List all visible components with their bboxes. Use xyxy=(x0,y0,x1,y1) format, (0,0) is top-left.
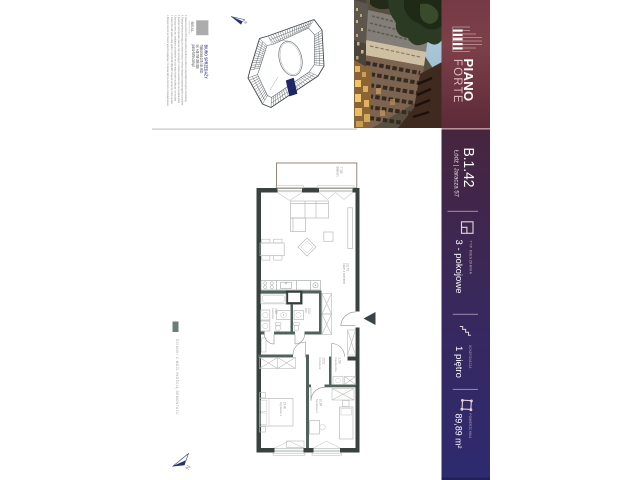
svg-text:Sypialnia 2: Sypialnia 2 xyxy=(315,399,319,413)
svg-text:KONDYGNACJA: KONDYGNACJA xyxy=(468,346,472,369)
svg-text:1 piętro: 1 piętro xyxy=(454,346,464,378)
svg-text:Korytarz: Korytarz xyxy=(318,358,322,371)
svg-text:Łódź | Jaracza 57: Łódź | Jaracza 57 xyxy=(452,150,459,198)
svg-text:B.1.42: B.1.42 xyxy=(460,148,477,188)
svg-text:Balkon: Balkon xyxy=(335,167,339,177)
svg-text:piano-forte.com.pl: piano-forte.com.pl xyxy=(191,45,196,67)
svg-text:ŚCIANKI Z MOŻLIWOŚCIĄ DEMONTAŻ: ŚCIANKI Z MOŻLIWOŚCIĄ DEMONTAŻU xyxy=(175,339,180,415)
svg-text:Łazienka: Łazienka xyxy=(271,308,275,319)
svg-text:REAL: REAL xyxy=(190,22,194,34)
svg-text:4. Deweloper zastrzega sobie p: 4. Deweloper zastrzega sobie prawo do zm… xyxy=(177,15,180,104)
svg-text:6. Ostateczna powierzchnia lok: 6. Ostateczna powierzchnia lokalu zostan… xyxy=(184,15,187,103)
svg-text:Salon z aneksem: Salon z aneksem xyxy=(342,263,346,284)
svg-text:3. Aranżacja wnętrz oraz umebl: 3. Aranżacja wnętrz oraz umeblowanie prz… xyxy=(173,15,176,101)
svg-text:2. Powierzchnie lokali podane: 2. Powierzchnie lokali podane zostały zg… xyxy=(170,15,173,104)
svg-text:POWIERZCHNIA: POWIERZCHNIA xyxy=(468,414,472,439)
svg-text:Garderoba: Garderoba xyxy=(334,358,338,372)
svg-text:WC: WC xyxy=(304,308,308,314)
svg-text:FORTE: FORTE xyxy=(451,59,465,104)
svg-text:TYP MIESZKANIA: TYP MIESZKANIA xyxy=(468,241,472,275)
svg-text:1. Niniejszy materiał ma chara: 1. Niniejszy materiał ma charakter wyłąc… xyxy=(166,15,169,107)
svg-text:5. Wymiary pomieszczeń mogą ul: 5. Wymiary pomieszczeń mogą ulec zmianie… xyxy=(181,15,184,105)
svg-text:89,89 m²: 89,89 m² xyxy=(453,414,463,449)
svg-text:3 - pokojowe: 3 - pokojowe xyxy=(454,240,464,294)
svg-text:Sypialnia 1: Sypialnia 1 xyxy=(279,402,283,416)
